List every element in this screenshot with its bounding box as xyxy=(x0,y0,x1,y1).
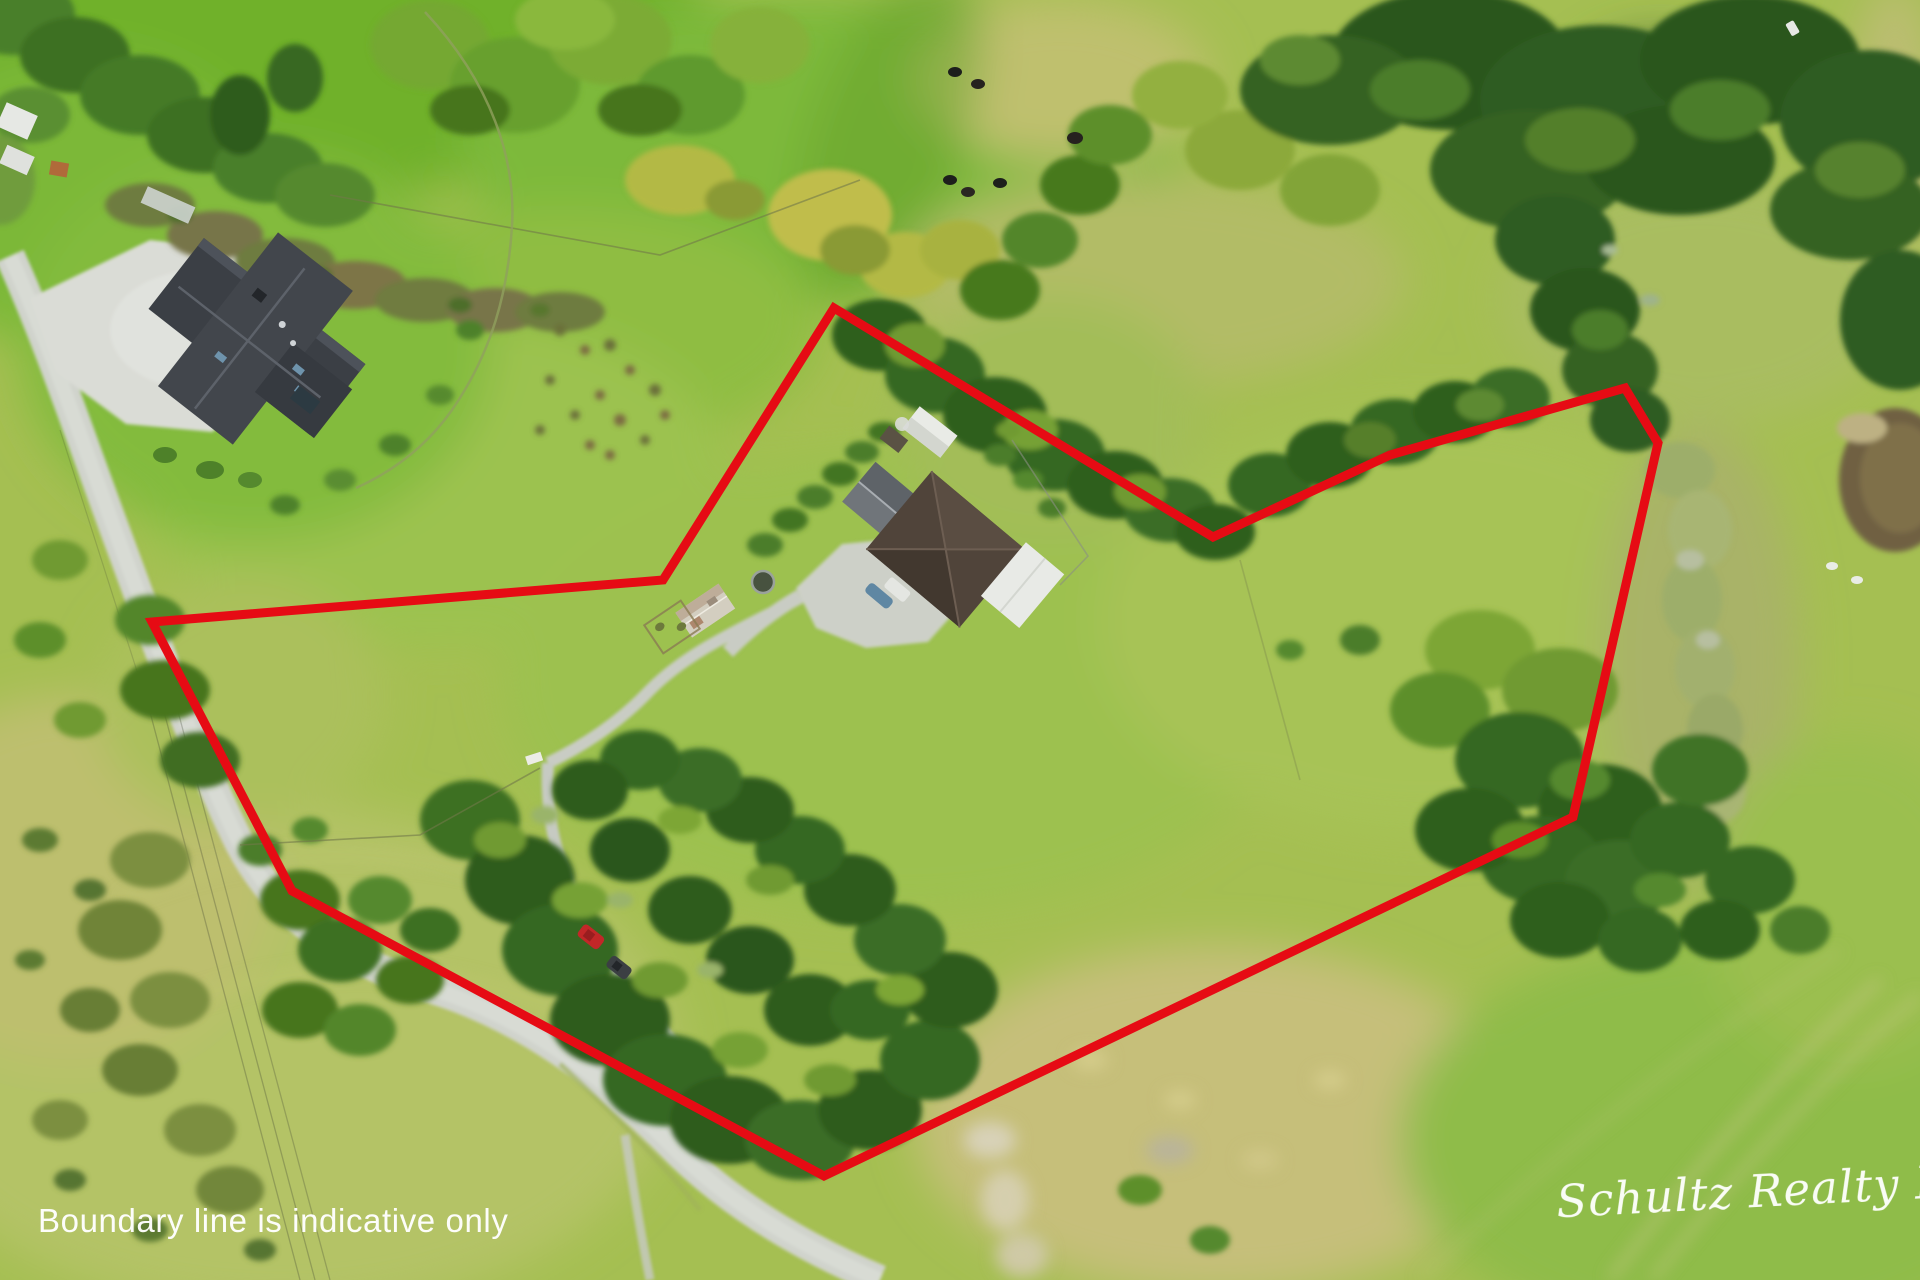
boundary-disclaimer-text: Boundary line is indicative only xyxy=(38,1202,508,1240)
aerial-photo-canvas xyxy=(0,0,1920,1280)
trampoline xyxy=(752,571,774,593)
aerial-photo: Boundary line is indicative only Schultz… xyxy=(0,0,1920,1280)
